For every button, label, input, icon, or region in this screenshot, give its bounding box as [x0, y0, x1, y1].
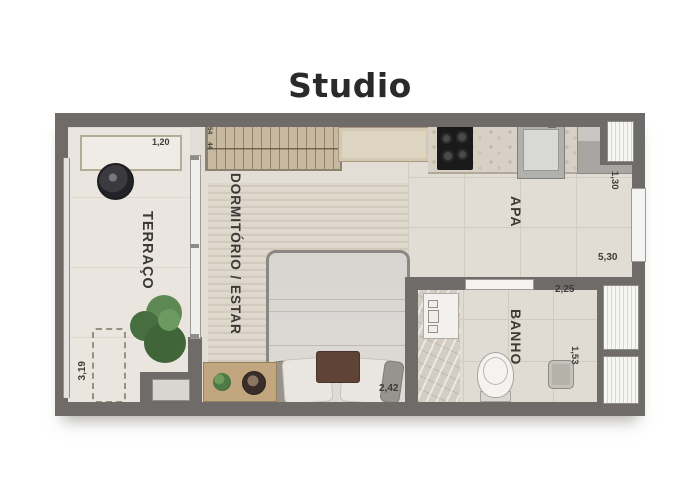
dim-bed: 2,42 [379, 383, 398, 394]
wardrobe [205, 125, 342, 171]
shaft [603, 285, 639, 350]
terrace-glazing [63, 158, 70, 398]
dim-terraco-length: 3,19 [77, 361, 88, 380]
sideboard [203, 362, 277, 402]
wall-top [55, 113, 645, 127]
cooktop [437, 126, 473, 170]
banho-label: BANHO [508, 309, 524, 365]
dim-wardrobe-a: 54 [206, 127, 213, 134]
shaft-top-right [607, 121, 634, 162]
sideboard-plant [213, 373, 231, 391]
dim-shower: 1,53 [569, 346, 580, 365]
dim-wardrobe-b: 44 [206, 142, 213, 149]
pillow [379, 360, 405, 404]
dormitorio-label: DORMITÓRIO / ESTAR [228, 173, 243, 335]
vanity [423, 293, 459, 339]
dim-planter: 1,20 [152, 137, 170, 147]
throw-pillow [316, 351, 360, 383]
decor-bowl [242, 371, 266, 395]
terrace-plant [128, 295, 188, 365]
glass-sliding-door [190, 155, 201, 339]
wall-banho-left [405, 277, 418, 416]
lounger-outline [92, 328, 126, 403]
shaft [603, 356, 639, 404]
wall-bottom [55, 402, 645, 416]
overhead-cabinet [338, 127, 430, 162]
kitchen-sink [517, 121, 565, 179]
terraco-label: TERRAÇO [139, 211, 155, 290]
banho-sliding-door [465, 279, 534, 290]
pillar-inset [152, 379, 190, 401]
dim-apa-length: 5,30 [598, 252, 617, 263]
entry-door [631, 188, 646, 262]
dim-apa-width: 1,30 [609, 171, 620, 190]
apa-label: APA [508, 196, 524, 228]
page-title: Studio [0, 66, 700, 105]
grill [97, 163, 134, 200]
dim-banho-width: 2,25 [555, 284, 574, 295]
screenshot: { "title": "Studio", "plan": { "rooms": … [0, 0, 700, 500]
floor-plan: TERRAÇO DORMITÓRIO / ESTAR APA BANHO 1,2… [55, 113, 645, 416]
